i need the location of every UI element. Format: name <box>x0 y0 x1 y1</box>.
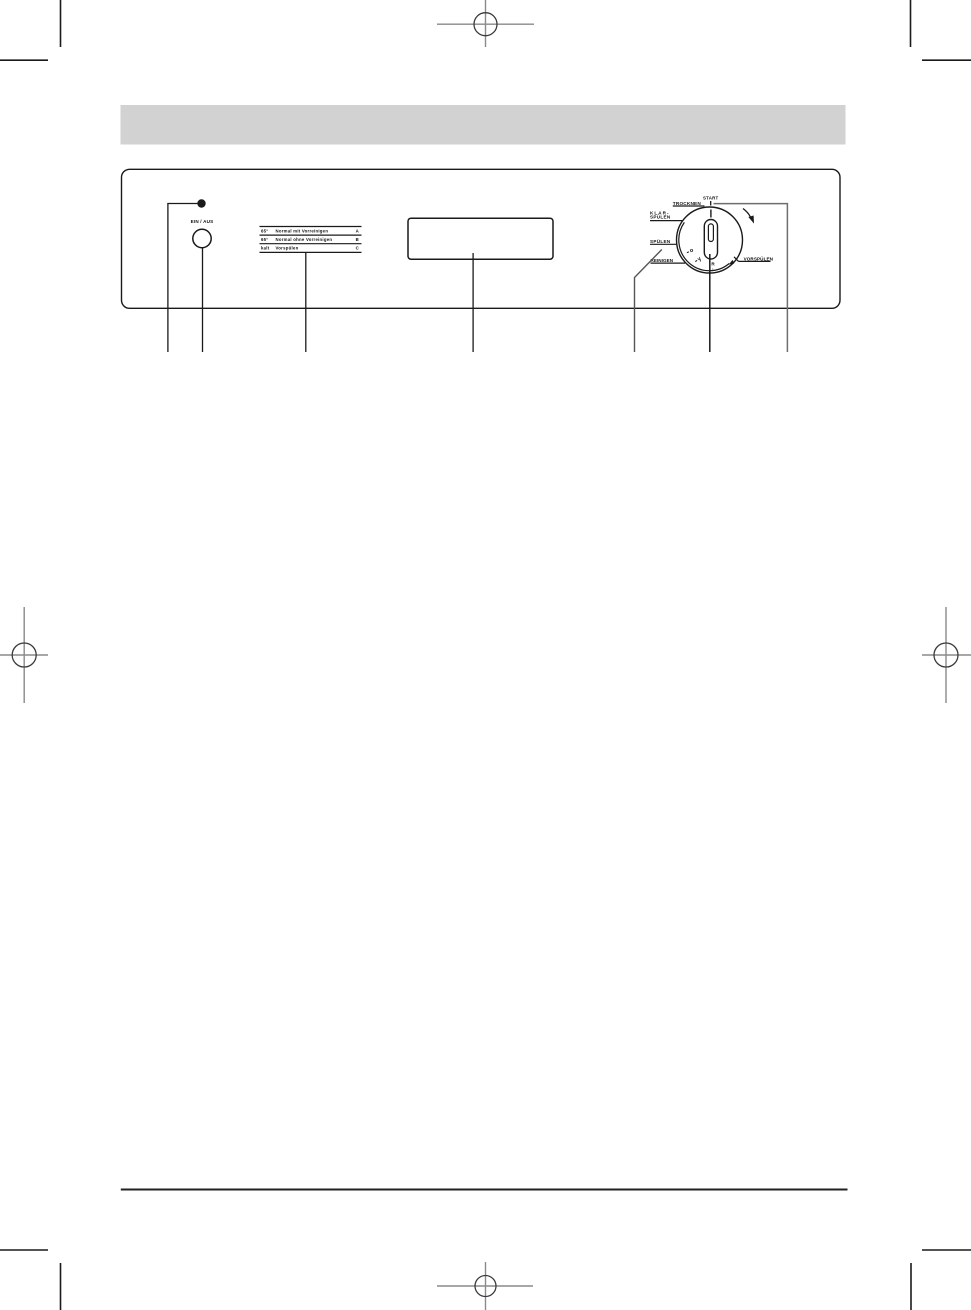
svg-text:SPÜLEN: SPÜLEN <box>650 214 671 220</box>
svg-text:B: B <box>356 237 359 242</box>
svg-text:START: START <box>703 195 718 200</box>
svg-text:A: A <box>356 228 359 233</box>
svg-text:,: , <box>712 266 713 270</box>
svg-text:EIN / AUS: EIN / AUS <box>191 219 214 224</box>
svg-text:Normal ohne Vorreinigen: Normal ohne Vorreinigen <box>276 237 333 242</box>
svg-text:Vorspülen: Vorspülen <box>276 246 299 251</box>
svg-text:Normal mit Vorreinigen: Normal mit Vorreinigen <box>276 228 329 233</box>
svg-text:VORSPÜLEN: VORSPÜLEN <box>744 255 774 261</box>
svg-text:SPÜLEN: SPÜLEN <box>650 238 671 244</box>
svg-text:65°: 65° <box>261 228 268 233</box>
svg-text:TROCKNEN: TROCKNEN <box>673 201 702 206</box>
svg-text:C: C <box>356 246 359 251</box>
svg-text:REINIGEN: REINIGEN <box>651 258 674 263</box>
svg-text:65°: 65° <box>261 237 268 242</box>
svg-text:kalt: kalt <box>261 246 270 251</box>
